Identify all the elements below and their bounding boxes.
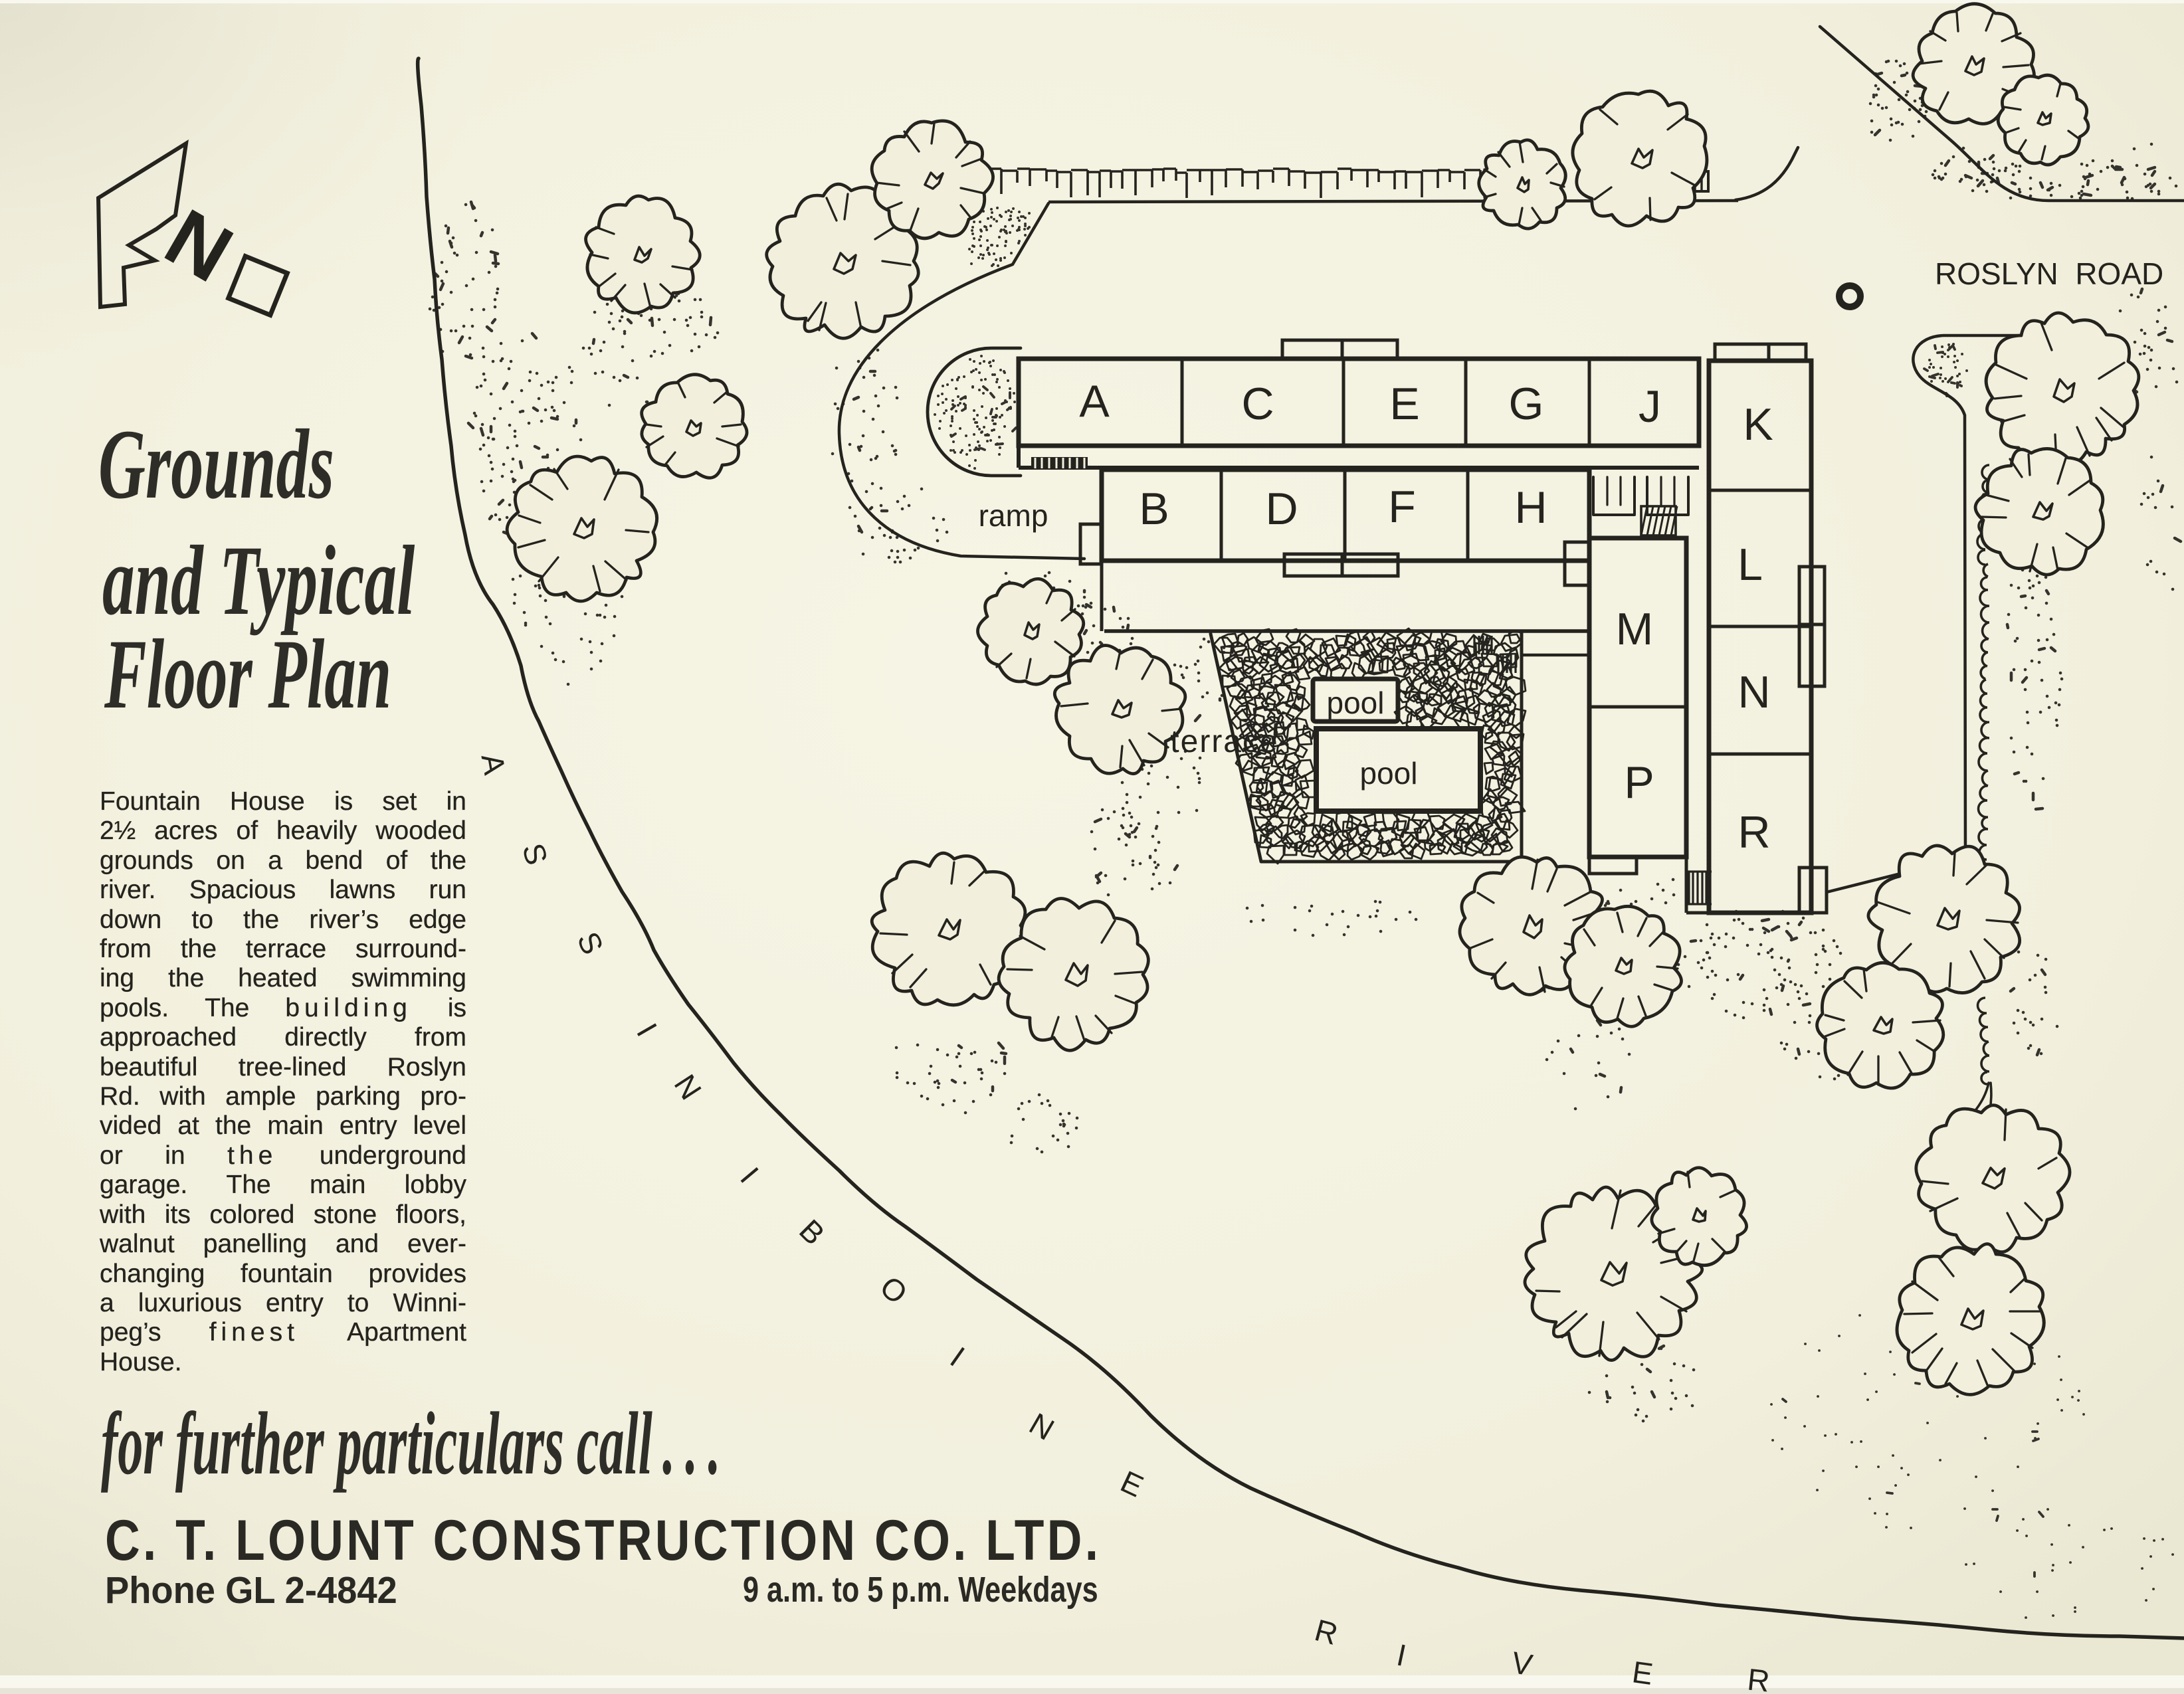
svg-text:R: R [1737,807,1770,858]
svg-text:pool: pool [1360,756,1418,791]
svg-text:G: G [1509,379,1544,429]
svg-text:terrace: terrace [1170,724,1278,759]
svg-text:E: E [1389,379,1419,429]
svg-text:H: H [1514,482,1547,533]
svg-text:M: M [1616,604,1654,654]
svg-text:P: P [1624,757,1654,808]
svg-text:K: K [1743,399,1773,450]
svg-text:A: A [1079,376,1110,426]
svg-text:N: N [1737,667,1770,717]
svg-text:pool: pool [1327,686,1385,720]
svg-text:F: F [1388,482,1416,532]
svg-text:D: D [1265,484,1298,534]
svg-text:J: J [1638,381,1661,432]
svg-text:C: C [1241,379,1274,429]
svg-text:ROSLYN ROAD: ROSLYN ROAD [1935,256,2163,291]
svg-text:L: L [1737,539,1763,590]
svg-text:B: B [1139,484,1169,534]
svg-text:R: R [1745,1661,1771,1694]
svg-text:ramp: ramp [979,498,1048,533]
